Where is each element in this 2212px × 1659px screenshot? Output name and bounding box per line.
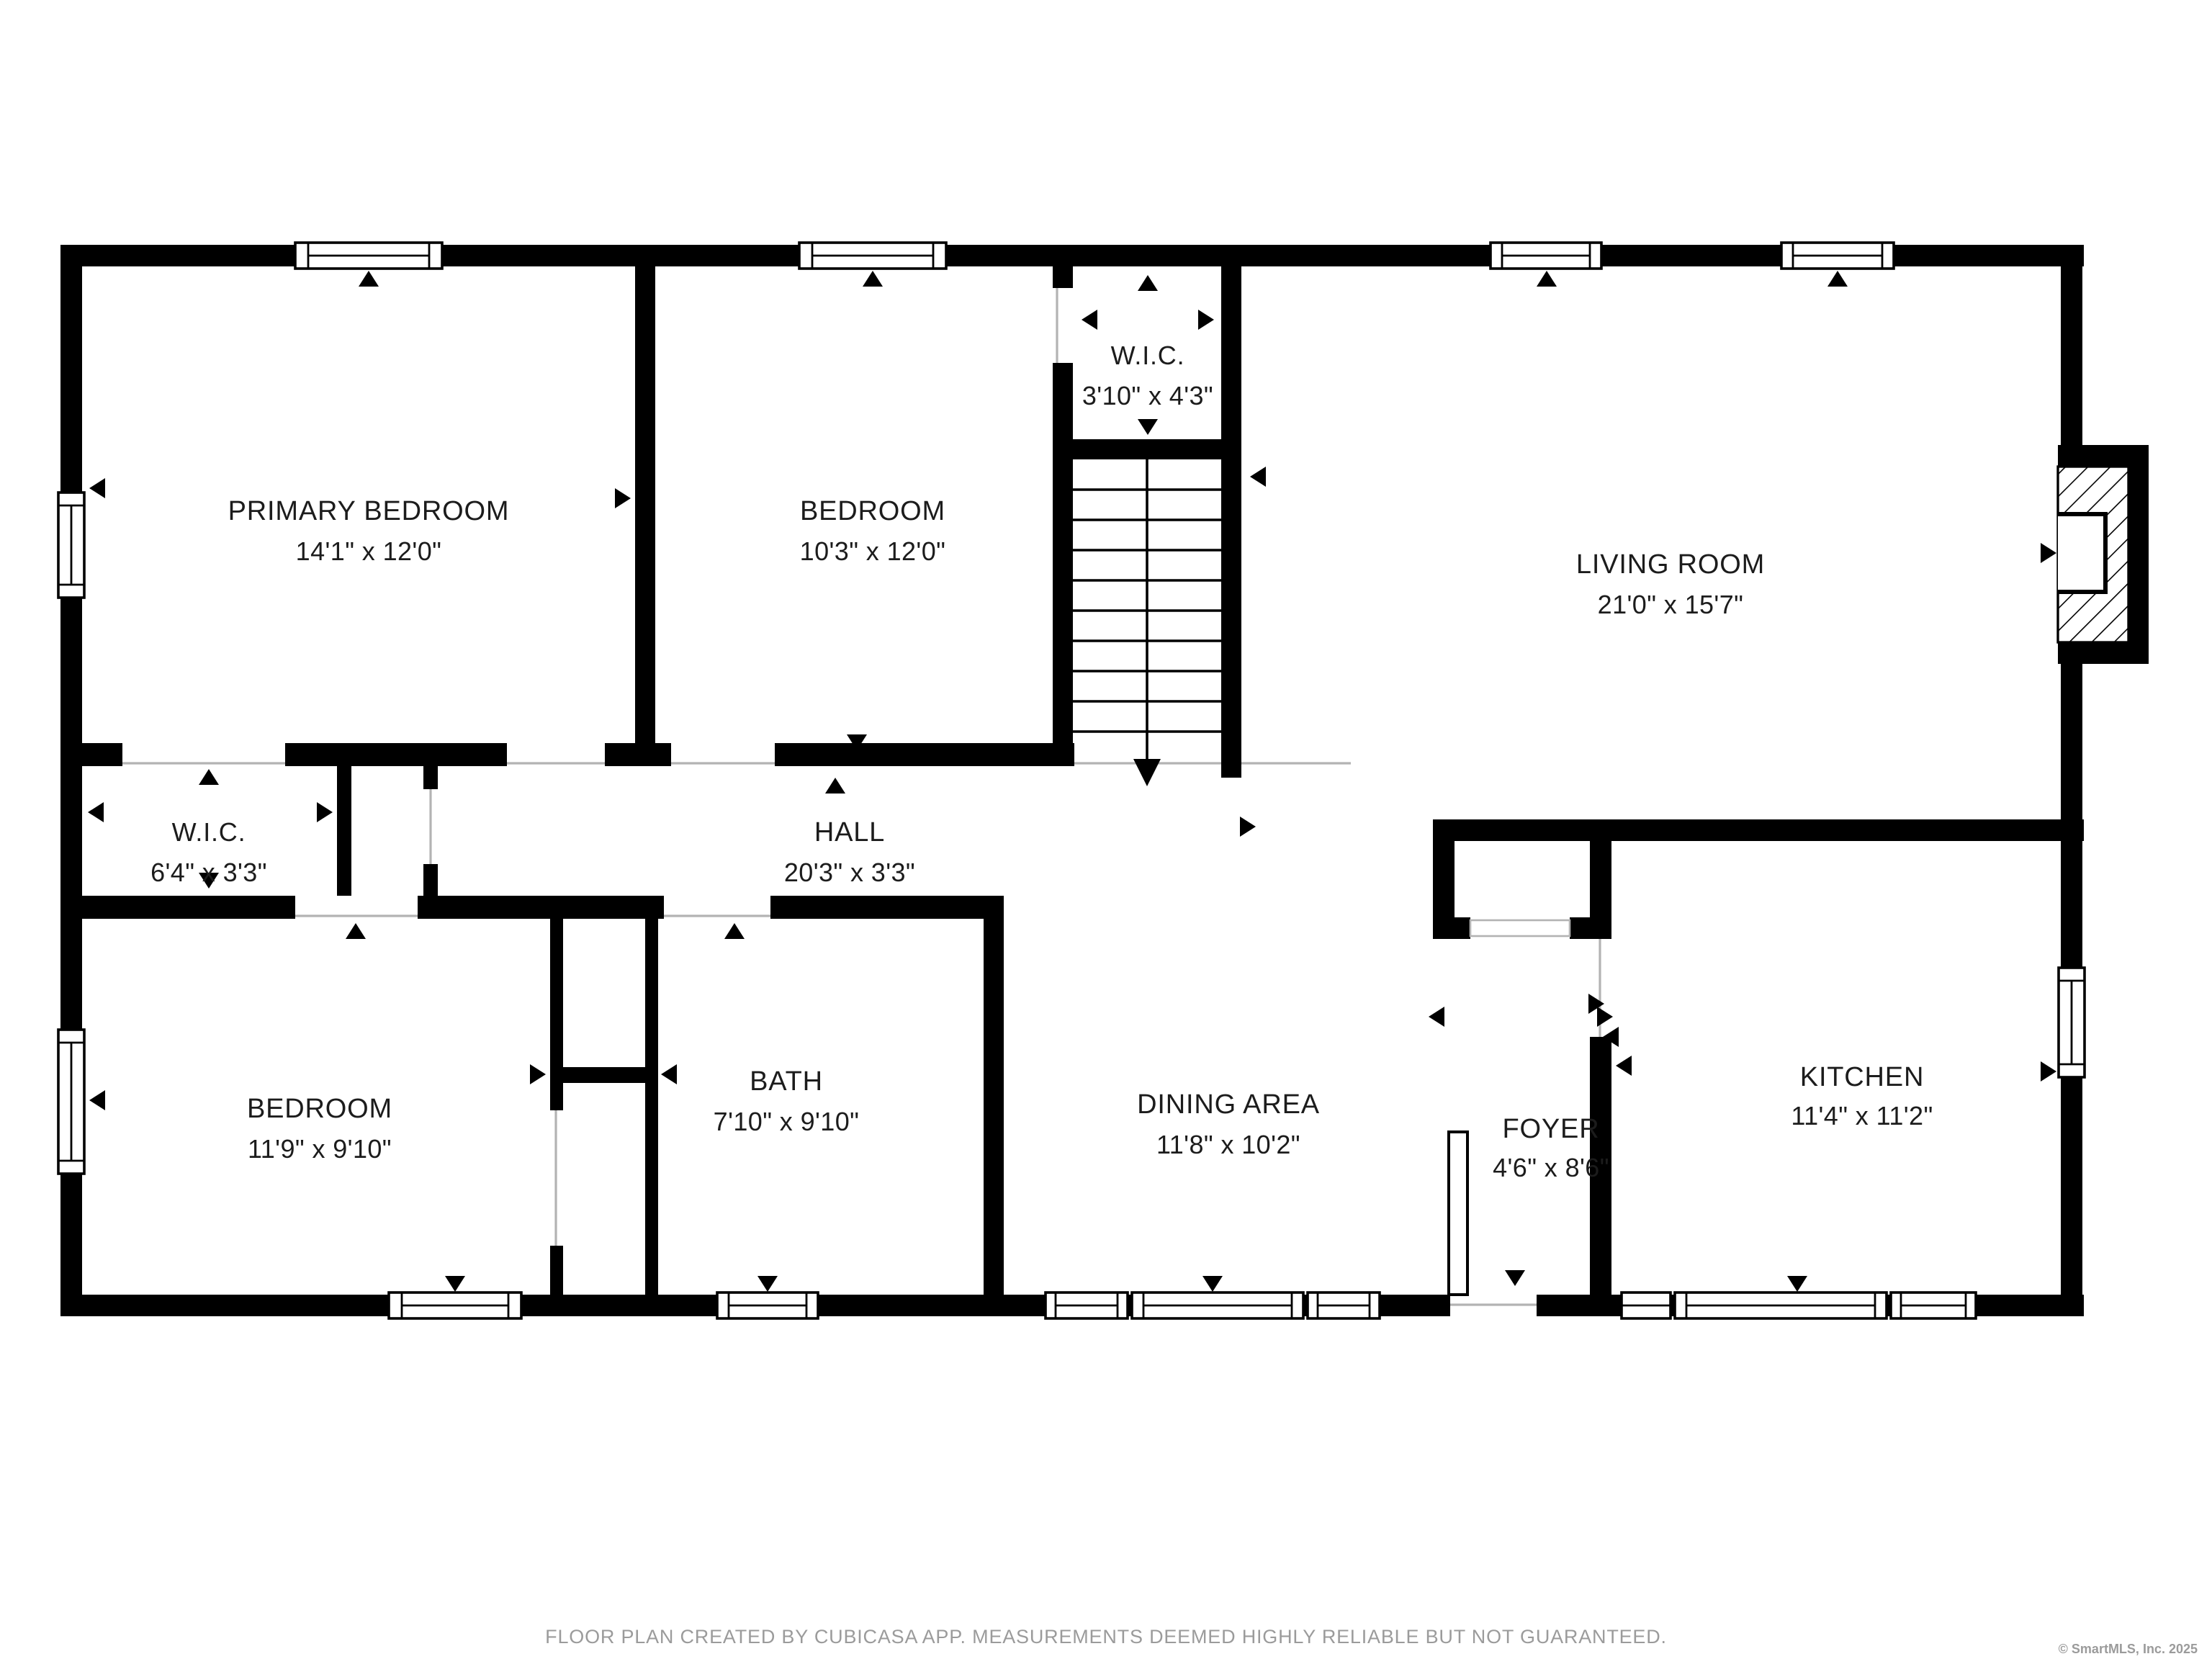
room-name: DINING AREA — [1137, 1089, 1320, 1120]
closet-sliding-opening — [1470, 920, 1570, 936]
window-dining-bottom-1 — [1046, 1292, 1128, 1318]
room-dims: 4'6" x 8'6" — [1493, 1153, 1609, 1182]
room-dims: 6'4" x 3'3" — [150, 858, 267, 887]
room-name: LIVING ROOM — [1576, 549, 1765, 580]
room-label-wic-top: W.I.C. 3'10" x 4'3" — [1082, 341, 1213, 410]
room-dims: 11'4" x 11'2" — [1791, 1101, 1933, 1130]
window-primary-bedroom-top — [295, 243, 442, 269]
room-dims: 11'8" x 10'2" — [1156, 1130, 1300, 1159]
room-label-dining-area: DINING AREA 11'8" x 10'2" — [1137, 1089, 1320, 1159]
room-label-bedroom-top: BEDROOM 10'3" x 12'0" — [800, 496, 946, 566]
room-dims: 3'10" x 4'3" — [1082, 381, 1213, 410]
room-label-bath: BATH 7'10" x 9'10" — [714, 1066, 860, 1136]
room-dims: 11'9" x 9'10" — [248, 1134, 392, 1164]
room-label-living-room: LIVING ROOM 21'0" x 15'7" — [1576, 549, 1765, 619]
room-name: BATH — [750, 1066, 823, 1097]
room-name: W.I.C. — [172, 817, 246, 847]
room-name: BEDROOM — [247, 1094, 392, 1124]
room-dims: 7'10" x 9'10" — [714, 1107, 860, 1136]
window-living-room-top-2 — [1781, 243, 1894, 269]
front-door-leaf — [1449, 1132, 1467, 1295]
stairs-down-arrowhead — [1133, 759, 1161, 786]
window-kitchen-bottom-2 — [1675, 1292, 1887, 1318]
room-dims: 14'1" x 12'0" — [296, 536, 442, 566]
room-label-wic-left: W.I.C. 6'4" x 3'3" — [150, 817, 267, 887]
floor-plan-page: PRIMARY BEDROOM 14'1" x 12'0" BEDROOM 10… — [0, 0, 2212, 1659]
window-bedroom-bottom — [389, 1292, 521, 1318]
room-name: FOYER — [1503, 1114, 1600, 1144]
window-dining-bottom-2 — [1132, 1292, 1303, 1318]
fireplace — [2058, 445, 2149, 664]
room-dims: 10'3" x 12'0" — [800, 536, 946, 566]
room-name: HALL — [814, 817, 885, 848]
staircase — [1073, 459, 1221, 786]
footer-disclaimer: FLOOR PLAN CREATED BY CUBICASA APP. MEAS… — [545, 1626, 1667, 1647]
window-kitchen-bottom-1 — [1622, 1292, 1671, 1318]
window-living-room-top-1 — [1491, 243, 1601, 269]
floor-plan-drawing: PRIMARY BEDROOM 14'1" x 12'0" BEDROOM 10… — [0, 0, 2212, 1659]
window-bedroom-bottom-left — [58, 1030, 84, 1174]
room-name: PRIMARY BEDROOM — [228, 496, 510, 526]
window-bath-bottom — [717, 1292, 818, 1318]
window-primary-bedroom-left — [58, 493, 84, 598]
window-kitchen-bottom-3 — [1891, 1292, 1976, 1318]
room-name: W.I.C. — [1111, 341, 1185, 370]
copyright-note: © SmartMLS, Inc. 2025 — [2059, 1642, 2198, 1656]
room-name: KITCHEN — [1800, 1062, 1924, 1092]
room-label-kitchen: KITCHEN 11'4" x 11'2" — [1791, 1062, 1933, 1130]
foyer-closet — [1433, 841, 1611, 939]
room-name: BEDROOM — [800, 496, 945, 526]
window-kitchen-right — [2059, 968, 2085, 1077]
window-dining-bottom-3 — [1308, 1292, 1380, 1318]
room-label-hall: HALL 20'3" x 3'3" — [784, 817, 915, 887]
room-dims: 20'3" x 3'3" — [784, 858, 915, 887]
room-label-bedroom-bottom: BEDROOM 11'9" x 9'10" — [247, 1094, 392, 1164]
room-dims: 21'0" x 15'7" — [1598, 590, 1744, 619]
room-label-primary-bedroom: PRIMARY BEDROOM 14'1" x 12'0" — [228, 496, 510, 566]
window-bedroom-top — [799, 243, 946, 269]
firebox — [2058, 514, 2105, 592]
